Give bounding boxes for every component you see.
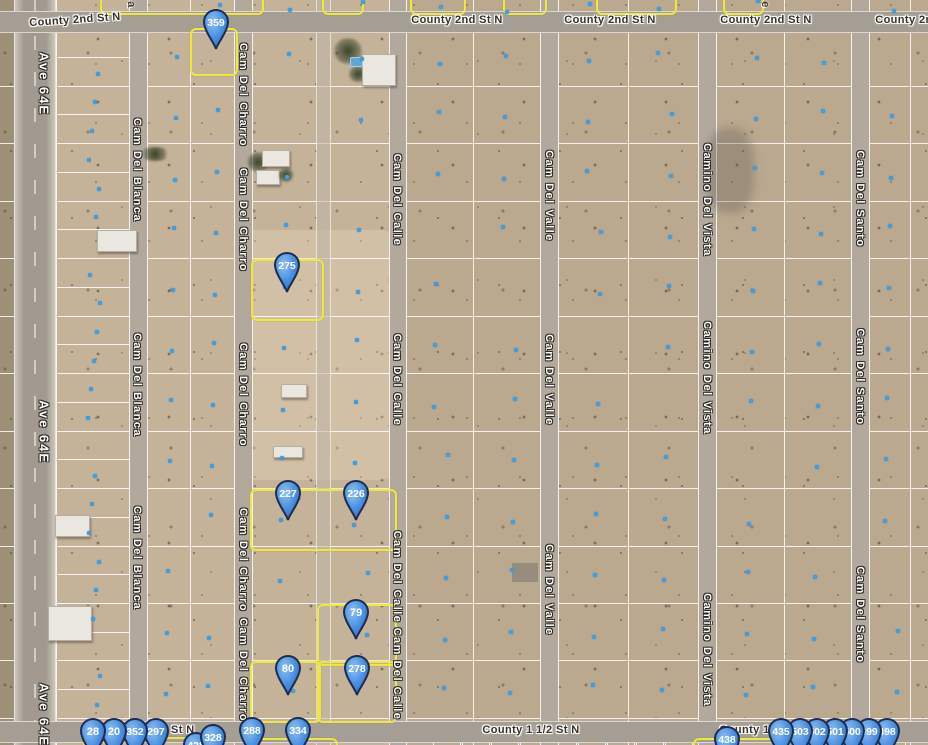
map-pin-278[interactable]: 278	[342, 654, 372, 696]
map-pin-438[interactable]: 438	[712, 725, 742, 745]
map-pin-334[interactable]: 334	[283, 716, 313, 745]
svg-text:79: 79	[350, 607, 362, 619]
pin-marker-icon: 334	[283, 716, 313, 745]
pin-marker-icon: 359	[201, 8, 231, 50]
svg-text:278: 278	[348, 663, 366, 675]
map-pin-328[interactable]: 328	[198, 723, 228, 745]
map-pins: 3592752272267980278428328297352202828833…	[0, 0, 928, 745]
svg-text:80: 80	[282, 663, 294, 675]
pin-marker-icon: 275	[272, 251, 302, 293]
pin-marker-icon: 28	[78, 717, 108, 745]
map-pin-79[interactable]: 79	[341, 598, 371, 640]
pin-marker-icon: 227	[273, 479, 303, 521]
pin-marker-icon: 278	[342, 654, 372, 696]
svg-text:227: 227	[279, 488, 297, 500]
svg-text:288: 288	[243, 725, 261, 737]
map-pin-226[interactable]: 226	[341, 479, 371, 521]
map-pin-359[interactable]: 359	[201, 8, 231, 50]
svg-text:359: 359	[207, 17, 225, 29]
svg-text:334: 334	[289, 725, 307, 737]
pin-marker-icon: 80	[273, 654, 303, 696]
svg-text:328: 328	[204, 732, 222, 744]
pin-marker-icon: 328	[198, 723, 228, 745]
map-pin-288[interactable]: 288	[237, 716, 267, 745]
pin-marker-icon: 438	[712, 725, 742, 745]
svg-text:28: 28	[87, 726, 99, 738]
svg-text:438: 438	[718, 734, 736, 745]
satellite-map[interactable]: County 2nd St NCounty 2nd St NCounty 2nd…	[0, 0, 928, 745]
svg-text:226: 226	[347, 488, 365, 500]
map-pin-28[interactable]: 28	[78, 717, 108, 745]
map-pin-435[interactable]: 435	[766, 717, 796, 745]
pin-marker-icon: 79	[341, 598, 371, 640]
map-pin-227[interactable]: 227	[273, 479, 303, 521]
svg-text:275: 275	[278, 260, 296, 272]
pin-marker-icon: 226	[341, 479, 371, 521]
svg-text:20: 20	[108, 726, 120, 738]
map-pin-275[interactable]: 275	[272, 251, 302, 293]
svg-text:435: 435	[772, 726, 790, 738]
pin-marker-icon: 288	[237, 716, 267, 745]
map-pin-80[interactable]: 80	[273, 654, 303, 696]
pin-marker-icon: 435	[766, 717, 796, 745]
